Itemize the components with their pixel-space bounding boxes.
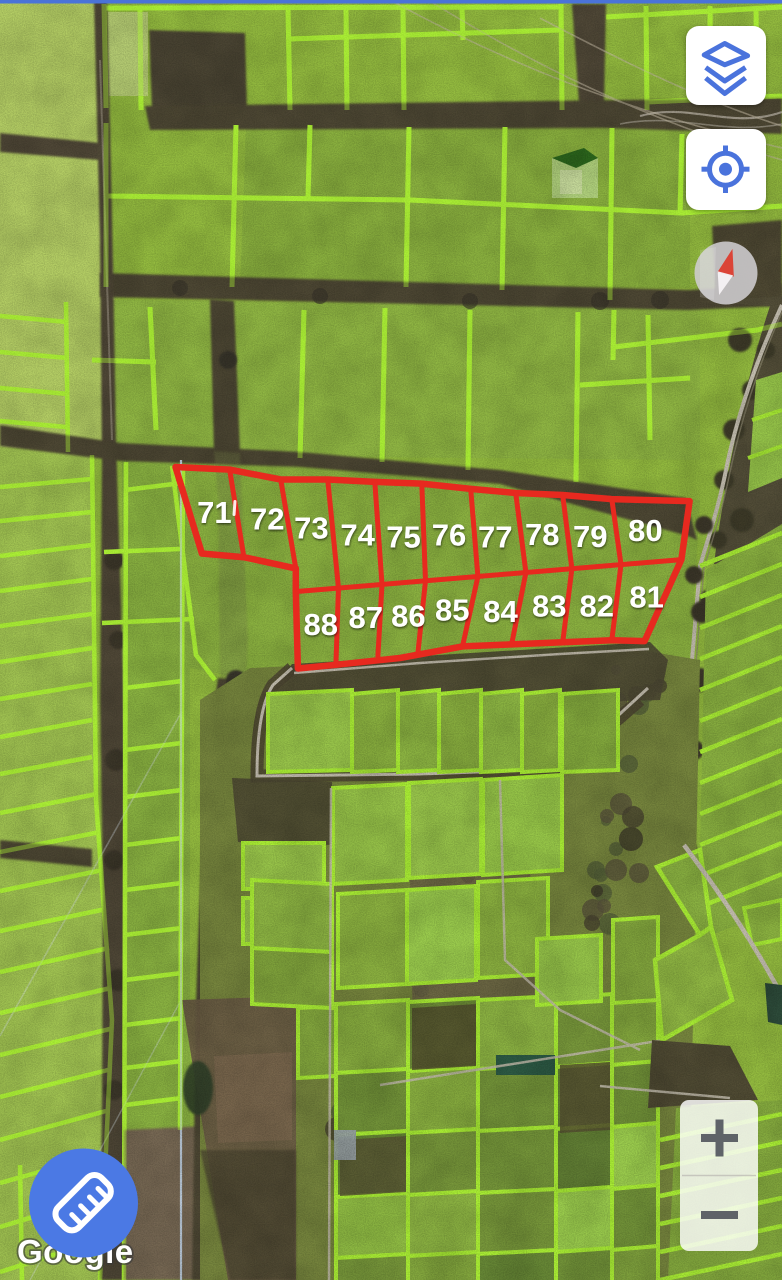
- svg-text:73: 73: [294, 511, 328, 546]
- svg-text:74: 74: [340, 518, 375, 553]
- svg-text:82: 82: [579, 589, 613, 624]
- svg-text:84: 84: [483, 594, 518, 629]
- svg-text:80: 80: [628, 513, 662, 548]
- svg-text:83: 83: [532, 589, 566, 624]
- svg-text:72: 72: [250, 502, 284, 537]
- svg-text:78: 78: [525, 517, 559, 552]
- svg-text:76: 76: [432, 518, 466, 553]
- svg-text:71: 71: [197, 495, 231, 530]
- svg-text:75: 75: [386, 520, 420, 555]
- svg-text:86: 86: [391, 599, 425, 634]
- svg-text:88: 88: [304, 607, 338, 642]
- svg-text:85: 85: [435, 593, 469, 628]
- svg-text:87: 87: [349, 600, 383, 635]
- svg-text:77: 77: [478, 520, 512, 555]
- svg-text:81: 81: [629, 580, 663, 615]
- svg-text:79: 79: [573, 519, 607, 554]
